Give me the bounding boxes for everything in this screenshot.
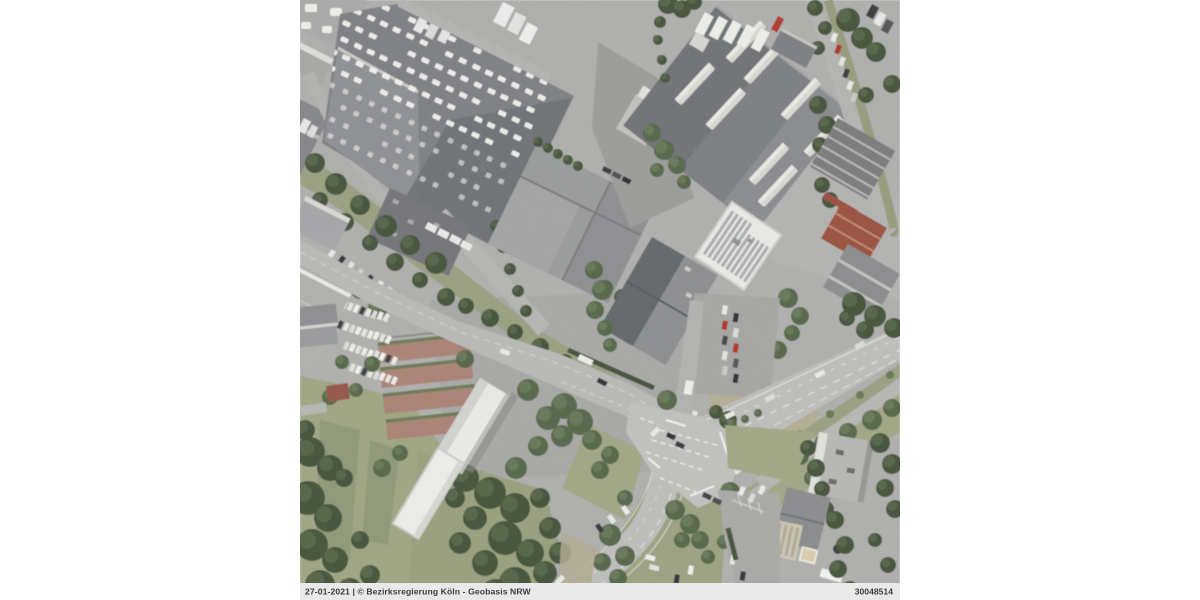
svg-text:30048514: 30048514 [855, 587, 893, 597]
svg-text:27-01-2021 | © Bezirksregierun: 27-01-2021 | © Bezirksregierung Köln - G… [305, 587, 532, 597]
